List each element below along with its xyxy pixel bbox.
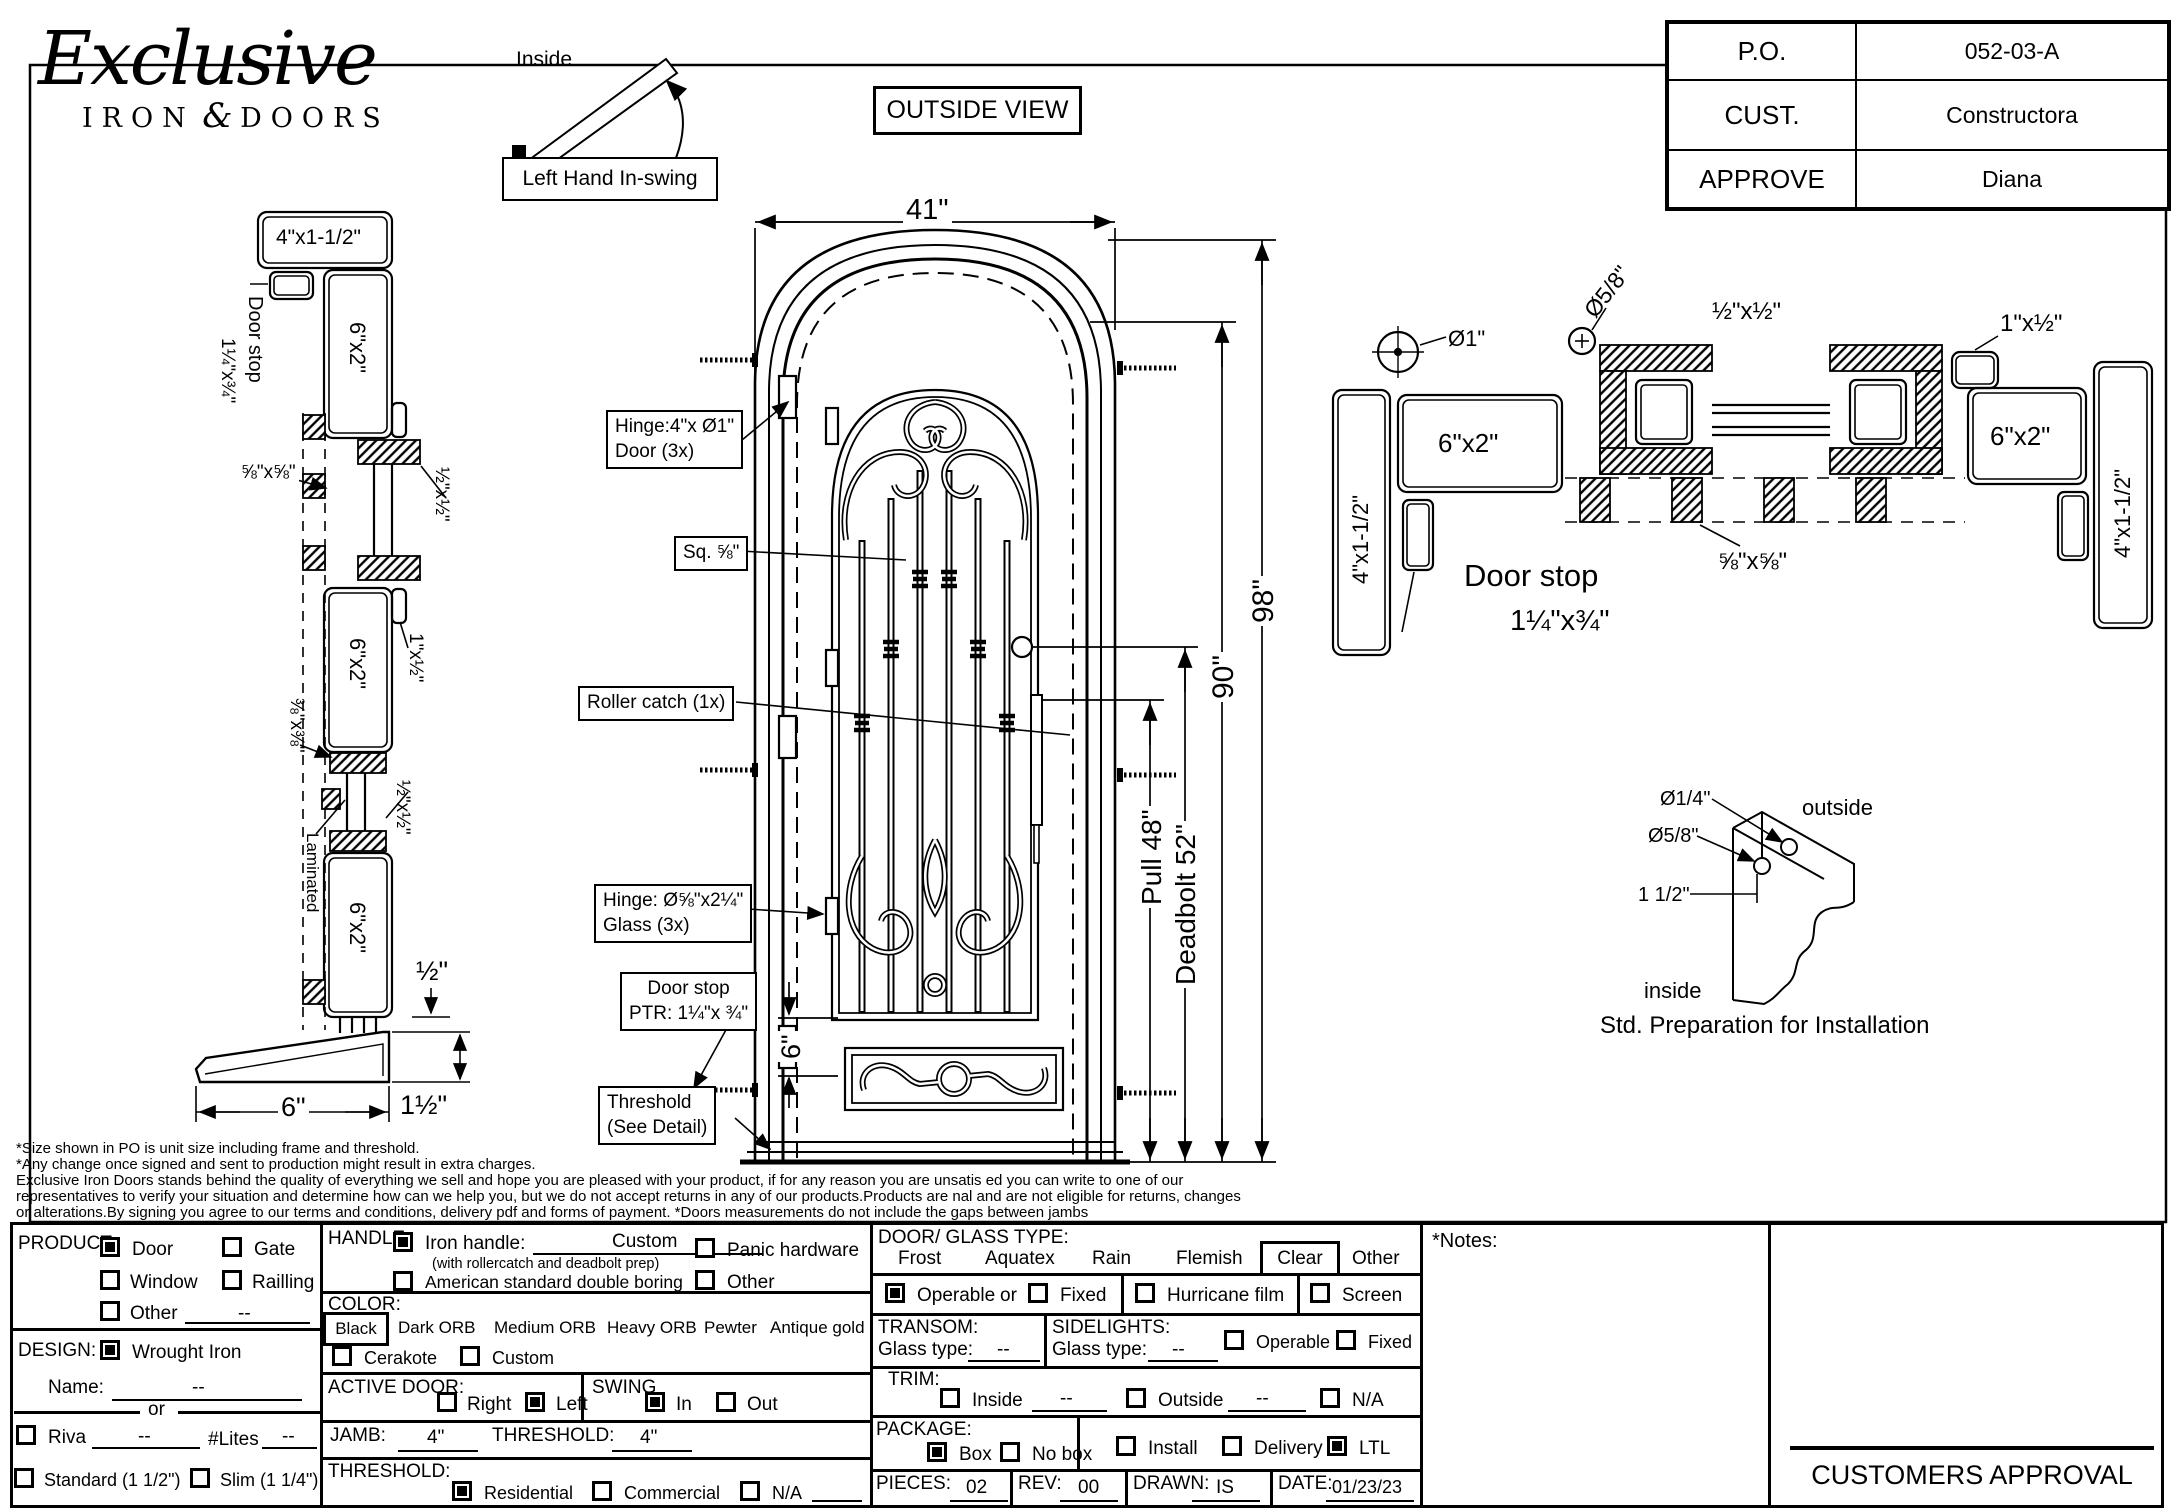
line-active-bottom <box>320 1420 873 1423</box>
sec-doorstop-label: Door stop <box>243 296 266 383</box>
sec-58-size: ⅝"x⅝" <box>238 462 299 484</box>
swing-in-checkbox[interactable] <box>645 1392 665 1412</box>
plan-jamb-right: 4"x1-1/2" <box>2110 469 2136 558</box>
color-cerakote-label: Cerakote <box>364 1348 437 1369</box>
sidelights-glass-label: Glass type: <box>1052 1339 1147 1361</box>
package-box-label: Box <box>959 1444 992 1466</box>
handle-other-label: Other <box>727 1272 775 1294</box>
product-other-checkbox[interactable] <box>100 1301 120 1321</box>
handle-note: (with rollercatch and deadbolt prep) <box>432 1256 659 1272</box>
active-right-label: Right <box>467 1394 511 1416</box>
jamb-threshold-label: THRESHOLD: <box>492 1425 614 1447</box>
callout-door-stop-line2: PTR: 1¼"x ¾" <box>629 1002 748 1027</box>
package-delivery-checkbox[interactable] <box>1222 1436 1242 1456</box>
package-install-checkbox[interactable] <box>1116 1436 1136 1456</box>
product-other-label: Other <box>130 1303 178 1325</box>
sec-onehalf-dim: 1½" <box>400 1090 447 1121</box>
design-label: DESIGN: <box>18 1340 96 1362</box>
handle-iron-checkbox[interactable] <box>393 1232 413 1252</box>
sec-laminated-label: Laminated <box>302 833 322 912</box>
outside-view-label: OUTSIDE VIEW <box>887 96 1069 125</box>
callout-door-stop-line1: Door stop <box>629 977 748 1002</box>
sidelights-fixed-label: Fixed <box>1368 1332 1412 1353</box>
slim-checkbox[interactable] <box>190 1468 210 1488</box>
callout-threshold-line1: Threshold <box>607 1091 707 1116</box>
threshold-residential-checkbox[interactable] <box>452 1481 472 1501</box>
callout-hinge-glass: Hinge: Ø⅝"x2¼" Glass (3x) <box>594 884 752 943</box>
door-unit-height-dim: 98" <box>1247 576 1281 626</box>
po-label: P.O. <box>1668 23 1856 80</box>
sec-half-b-size: ½"x½" <box>391 780 413 835</box>
sec-half-size: ½"x½" <box>430 467 452 522</box>
riva-value: -- <box>138 1426 151 1448</box>
disclaimer-line3: Exclusive Iron Doors stands behind the q… <box>16 1173 1183 1189</box>
form-border-bottom <box>10 1505 2164 1508</box>
package-label: PACKAGE: <box>876 1419 972 1441</box>
callout-hinge-door-line1: Hinge:4"x Ø1" <box>615 415 734 440</box>
swing-inside-label: Inside <box>516 48 572 72</box>
line-operable-bottom <box>870 1313 1423 1316</box>
po-table: P.O. 052-03-A CUST. Constructora APPROVE… <box>1665 20 2171 211</box>
cust-value: Constructora <box>1856 80 2168 150</box>
detail-d112: 1 1/2" <box>1638 884 1690 907</box>
callout-hinge-glass-line1: Hinge: Ø⅝"x2¼" <box>603 889 743 914</box>
design-name-value: -- <box>192 1377 205 1399</box>
trim-inside-value: -- <box>1060 1388 1073 1410</box>
sec-six-dim: 6" <box>278 1092 309 1123</box>
glass-operable-label: Operable <box>917 1285 995 1307</box>
sec-1x12-size: 1"x½" <box>404 633 426 682</box>
handle-other-checkbox[interactable] <box>695 1270 715 1290</box>
disclaimer-line2: *Any change once signed and sent to prod… <box>16 1157 536 1173</box>
active-left-checkbox[interactable] <box>525 1392 545 1412</box>
color-heavy-label[interactable]: Heavy ORB <box>607 1318 697 1338</box>
lites-value: -- <box>282 1426 295 1448</box>
hurricane-label: Hurricane film <box>1167 1285 1284 1307</box>
transom-glass-label: Glass type: <box>878 1339 973 1361</box>
form-divider-3 <box>1420 1222 1423 1508</box>
line-hurricane-div2 <box>1297 1273 1300 1313</box>
approve-value: Diana <box>1856 150 2168 208</box>
trim-outside-value: -- <box>1256 1388 1269 1410</box>
color-dark-label[interactable]: Dark ORB <box>398 1318 475 1338</box>
line-transom-div <box>1044 1313 1047 1366</box>
callout-roller-catch: Roller catch (1x) <box>578 686 734 721</box>
glass-frost-label[interactable]: Frost <box>898 1248 941 1270</box>
transom-label: TRANSOM: <box>878 1317 978 1339</box>
notes-label: *Notes: <box>1432 1230 1498 1253</box>
plan-doorstop-size: 1¼"x¾" <box>1510 605 1610 638</box>
swing-in-label: In <box>676 1394 692 1416</box>
callout-square-bar: Sq. ⅝" <box>674 536 748 571</box>
line-jamb-bottom <box>320 1457 873 1460</box>
handle-american-checkbox[interactable] <box>393 1271 413 1291</box>
plan-half-size: ½"x½" <box>1712 298 1781 326</box>
sec-38-size: ⅜"x⅜" <box>285 698 307 753</box>
riva-checkbox[interactable] <box>16 1425 36 1445</box>
threshold-commercial-checkbox[interactable] <box>592 1481 612 1501</box>
sidelights-operable-label: Operable <box>1256 1332 1330 1353</box>
swing-caption: Left Hand In-swing <box>522 167 697 191</box>
package-nobox-checkbox[interactable] <box>1000 1442 1020 1462</box>
jamb-value: 4" <box>427 1427 444 1449</box>
product-gate-checkbox[interactable] <box>222 1237 242 1257</box>
trim-na-label: N/A <box>1352 1390 1384 1412</box>
callout-hinge-door: Hinge:4"x Ø1" Door (3x) <box>606 410 743 469</box>
active-left-label: Left <box>556 1394 588 1416</box>
drawn-value: IS <box>1216 1477 1234 1499</box>
product-gate-label: Gate <box>254 1239 295 1261</box>
line-pieces-div2 <box>1125 1469 1128 1508</box>
threshold-label: THRESHOLD: <box>328 1461 450 1483</box>
form-border-left <box>10 1222 13 1508</box>
sidelights-label: SIDELIGHTS: <box>1052 1317 1170 1339</box>
glass-other-label[interactable]: Other <box>1352 1248 1400 1270</box>
threshold-na-label: N/A <box>772 1483 802 1504</box>
glass-fixed-label: Fixed <box>1060 1285 1106 1307</box>
line-or-right <box>178 1411 320 1414</box>
package-install-label: Install <box>1148 1438 1198 1460</box>
detail-d14: Ø1/4" <box>1660 788 1710 811</box>
jamb-label: JAMB: <box>330 1425 386 1447</box>
product-window-label: Window <box>130 1272 198 1294</box>
color-custom-label: Custom <box>492 1348 554 1369</box>
glass-clear-selected[interactable]: Clear <box>1260 1241 1340 1276</box>
callout-threshold-line2: (See Detail) <box>607 1116 707 1141</box>
swing-out-label: Out <box>747 1394 778 1416</box>
plan-1x12-size: 1"x½" <box>2000 310 2062 338</box>
callout-hinge-door-line2: Door (3x) <box>615 440 734 465</box>
line-glasstype-bottom <box>870 1273 1423 1276</box>
glass-fixed-checkbox[interactable] <box>1028 1283 1048 1303</box>
callout-hinge-glass-line2: Glass (3x) <box>603 914 743 939</box>
design-name-field[interactable] <box>112 1375 302 1401</box>
po-value: 052-03-A <box>1856 23 2168 80</box>
sec-half-dim: ½" <box>416 956 448 987</box>
product-railing-checkbox[interactable] <box>222 1270 242 1290</box>
design-or-label: or <box>148 1399 165 1421</box>
trim-inside-checkbox[interactable] <box>940 1388 960 1408</box>
logo-doors: DOORS <box>240 103 390 134</box>
outside-view-box: OUTSIDE VIEW <box>873 86 1082 135</box>
sidelights-glass-value: -- <box>1172 1339 1185 1361</box>
screen-label: Screen <box>1342 1285 1402 1307</box>
riva-label: Riva <box>48 1427 86 1449</box>
door-deadbolt-dim: Deadbolt 52" <box>1170 821 1202 988</box>
product-railing-label: Railling <box>252 1272 314 1294</box>
approve-label: APPROVE <box>1668 150 1856 208</box>
door-pull-dim: Pull 48" <box>1136 806 1168 908</box>
line-or-left <box>14 1411 140 1414</box>
logo-subtitle: IRON & DOORS <box>82 96 390 136</box>
design-wrought-checkbox[interactable] <box>100 1340 120 1360</box>
date-value: 01/23/23 <box>1332 1477 1402 1498</box>
design-wrought-label: Wrought Iron <box>132 1342 241 1364</box>
glass-operable-checkbox[interactable] <box>885 1283 905 1303</box>
callout-threshold: Threshold (See Detail) <box>598 1086 716 1145</box>
glass-flemish-label[interactable]: Flemish <box>1176 1248 1243 1270</box>
line-trim-bottom <box>870 1415 1423 1418</box>
swing-out-checkbox[interactable] <box>716 1392 736 1412</box>
threshold-na-field[interactable] <box>812 1478 862 1502</box>
product-window-checkbox[interactable] <box>100 1270 120 1290</box>
trim-label: TRIM: <box>888 1369 940 1391</box>
sidelights-operable-checkbox[interactable] <box>1224 1330 1244 1350</box>
trim-outside-label: Outside <box>1158 1390 1223 1412</box>
transom-glass-value: -- <box>997 1339 1010 1361</box>
handle-american-label: American standard double boring <box>425 1272 683 1293</box>
cust-label: CUST. <box>1668 80 1856 150</box>
threshold-residential-label: Residential <box>484 1483 573 1504</box>
color-black-label: Black <box>335 1319 377 1339</box>
color-cerakote-checkbox[interactable] <box>332 1346 352 1366</box>
line-product-bottom <box>10 1328 323 1331</box>
callout-square-bar-text: Sq. ⅝" <box>683 541 739 566</box>
plan-profile-left: 6"x2" <box>1438 428 1498 459</box>
threshold-na-checkbox[interactable] <box>740 1481 760 1501</box>
line-hurricane-div1 <box>1121 1273 1124 1313</box>
standard-checkbox[interactable] <box>14 1468 34 1488</box>
slim-label: Slim (1 1/4") <box>220 1470 318 1491</box>
color-pewter-label[interactable]: Pewter <box>704 1318 757 1338</box>
plan-jamb-left: 4"x1-1/2" <box>1348 495 1374 584</box>
sec-profile3-size: 6"x2" <box>344 902 370 953</box>
package-ltl-label: LTL <box>1359 1438 1390 1460</box>
callout-door-stop: Door stop PTR: 1¼"x ¾" <box>620 972 757 1031</box>
form-divider-1 <box>320 1222 323 1508</box>
approval-signature-line[interactable] <box>1790 1446 2154 1450</box>
package-nobox-label: No box <box>1032 1444 1092 1466</box>
design-name-label: Name: <box>48 1377 104 1399</box>
line-transom-bottom <box>870 1366 1423 1369</box>
door-width-dim: 41" <box>903 194 952 227</box>
customers-approval-label: CUSTOMERS APPROVAL <box>1780 1460 2164 1491</box>
threshold-commercial-label: Commercial <box>624 1483 720 1504</box>
line-pieces-div3 <box>1270 1469 1273 1508</box>
package-box-checkbox[interactable] <box>927 1442 947 1462</box>
rev-value: 00 <box>1078 1477 1099 1499</box>
handle-iron-label: Iron handle: <box>425 1233 525 1255</box>
color-custom-checkbox[interactable] <box>460 1346 480 1366</box>
installation-detail-drawing <box>1690 799 1854 1004</box>
door-elevation-drawing <box>694 222 1276 1162</box>
plan-58-size: ⅝"x⅝" <box>1718 548 1787 576</box>
line-pieces-div1 <box>1010 1469 1013 1508</box>
product-door-label: Door <box>132 1239 173 1261</box>
form-border-top <box>10 1222 2164 1225</box>
detail-d58: Ø5/8" <box>1648 825 1698 848</box>
jamb-threshold-value: 4" <box>640 1427 657 1449</box>
detail-outside: outside <box>1802 795 1873 821</box>
color-antique-label[interactable]: Antique gold <box>770 1318 865 1338</box>
handle-panic-label: Panic hardware <box>727 1240 859 1262</box>
handle-iron-value: Custom <box>612 1231 677 1253</box>
logo-iron: IRON <box>82 103 195 134</box>
package-ltl-checkbox[interactable] <box>1327 1436 1347 1456</box>
glass-or-label: or <box>1000 1285 1017 1307</box>
line-package-bottom <box>870 1469 1423 1472</box>
screen-checkbox[interactable] <box>1310 1283 1330 1303</box>
detail-caption: Std. Preparation for Installation <box>1600 1012 1930 1040</box>
sec-doorstop-size: 1¼"x¾" <box>216 338 238 403</box>
line-color-bottom <box>320 1372 873 1375</box>
swing-caption-box: Left Hand In-swing <box>502 157 718 201</box>
pieces-value: 02 <box>966 1477 987 1499</box>
color-medium-label[interactable]: Medium ORB <box>494 1318 596 1338</box>
handle-panic-checkbox[interactable] <box>695 1238 715 1258</box>
door-rail-dim: 6" <box>776 1031 807 1062</box>
plan-section-drawing <box>1333 308 2152 655</box>
lites-label: #Lites <box>208 1429 259 1451</box>
sec-top-size: 4"x1-1/2" <box>276 226 361 250</box>
date-label: DATE: <box>1278 1473 1333 1495</box>
form-divider-2 <box>870 1222 873 1508</box>
glass-rain-label[interactable]: Rain <box>1092 1248 1131 1270</box>
glass-clear-label: Clear <box>1277 1248 1322 1270</box>
disclaimer-line1: *Size shown in PO is unit size including… <box>16 1141 420 1157</box>
logo-ampersand-icon: & <box>202 96 232 136</box>
rev-label: REV: <box>1018 1473 1062 1495</box>
callout-roller-catch-text: Roller catch (1x) <box>587 691 725 716</box>
package-delivery-label: Delivery <box>1254 1438 1323 1460</box>
detail-inside: inside <box>1644 978 1701 1004</box>
disclaimer-line4: representatives to verify your situation… <box>16 1189 1241 1205</box>
glass-type-label: DOOR/ GLASS TYPE: <box>878 1227 1069 1249</box>
sec-profile2-size: 6"x2" <box>344 638 370 689</box>
product-door-checkbox[interactable] <box>100 1237 120 1257</box>
glass-aquatex-label[interactable]: Aquatex <box>985 1248 1055 1270</box>
active-right-checkbox[interactable] <box>437 1392 457 1412</box>
plan-hinge-dia: Ø1" <box>1448 326 1485 352</box>
spec-sheet: Exclusive IRON & DOORS Inside Outside Le… <box>0 0 2174 1512</box>
hurricane-checkbox[interactable] <box>1135 1283 1155 1303</box>
sec-profile1-size: 6"x2" <box>344 322 370 373</box>
trim-na-checkbox[interactable] <box>1320 1388 1340 1408</box>
logo-script: Exclusive <box>38 16 376 102</box>
product-other-value: -- <box>238 1303 251 1325</box>
form-divider-4 <box>1768 1222 1771 1508</box>
trim-inside-label: Inside <box>972 1390 1023 1412</box>
disclaimer-line5: or alterations.By signing you agree to o… <box>16 1205 1088 1221</box>
door-leaf-height-dim: 90" <box>1207 652 1241 702</box>
pieces-label: PIECES: <box>876 1473 951 1495</box>
standard-label: Standard (1 1/2") <box>44 1470 180 1491</box>
color-black-selected[interactable]: Black <box>323 1312 389 1346</box>
sidelights-fixed-checkbox[interactable] <box>1336 1330 1356 1350</box>
trim-outside-checkbox[interactable] <box>1126 1388 1146 1408</box>
plan-profile-right: 6"x2" <box>1990 421 2050 452</box>
plan-doorstop-label: Door stop <box>1464 558 1598 594</box>
